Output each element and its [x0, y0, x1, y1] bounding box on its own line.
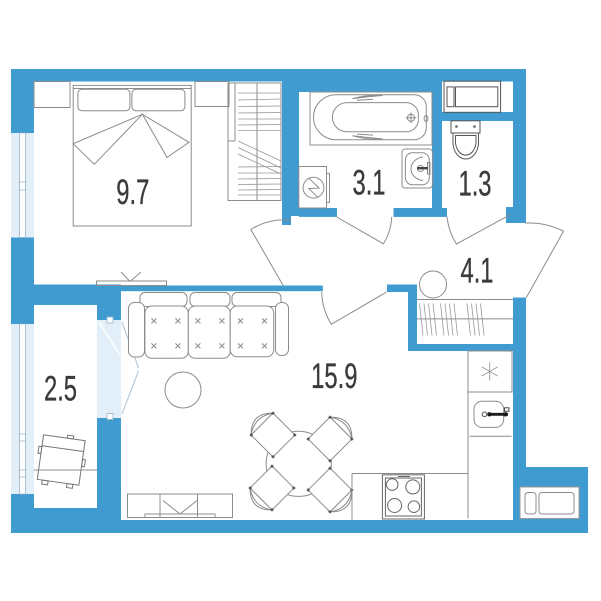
svg-text:2.5: 2.5 [44, 370, 77, 409]
svg-text:1.3: 1.3 [458, 165, 491, 204]
svg-text:3.1: 3.1 [352, 164, 385, 203]
svg-text:15.9: 15.9 [311, 357, 357, 396]
svg-text:4.1: 4.1 [460, 252, 493, 291]
svg-text:9.7: 9.7 [116, 174, 149, 213]
